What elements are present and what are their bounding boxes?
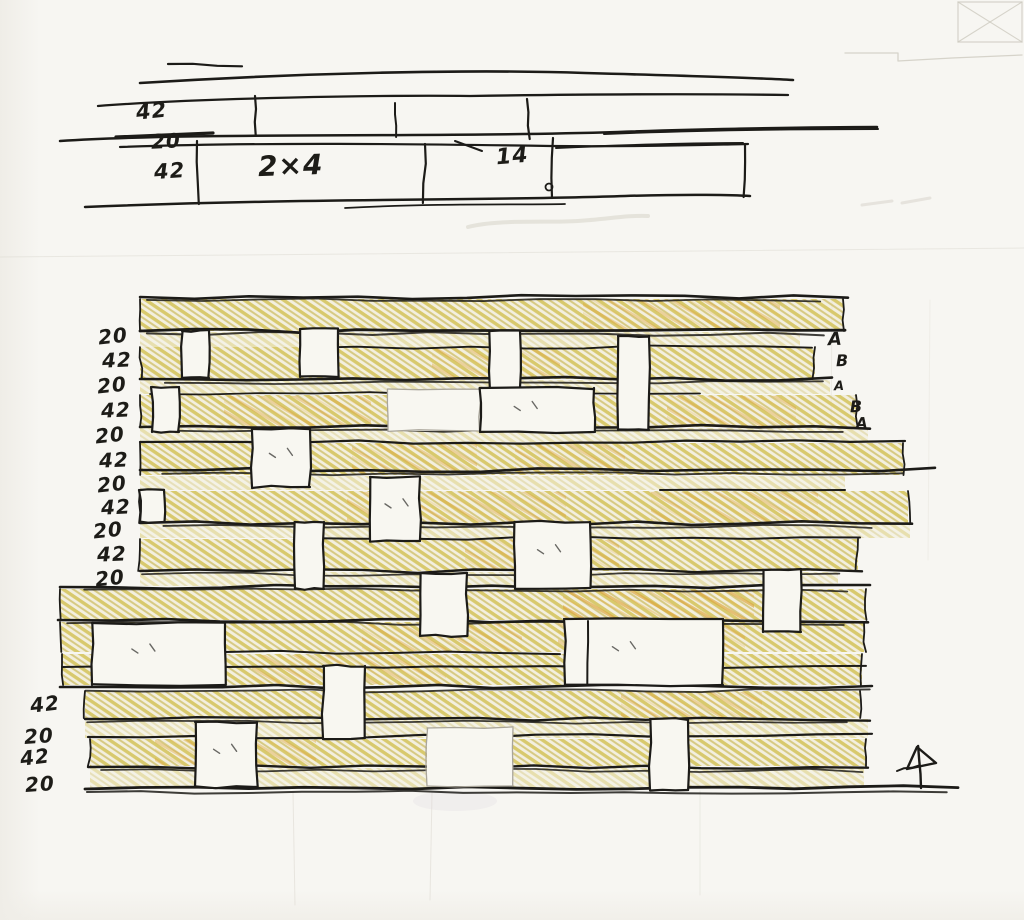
section-flag-icon	[897, 746, 936, 788]
sketch-drawing	[0, 0, 1024, 920]
top-detail-sketch	[60, 64, 878, 208]
wall-elevation-sketch	[58, 295, 958, 793]
sketch-canvas: 42 20 42 2×4 14 204220422042204220422042…	[0, 0, 1024, 920]
